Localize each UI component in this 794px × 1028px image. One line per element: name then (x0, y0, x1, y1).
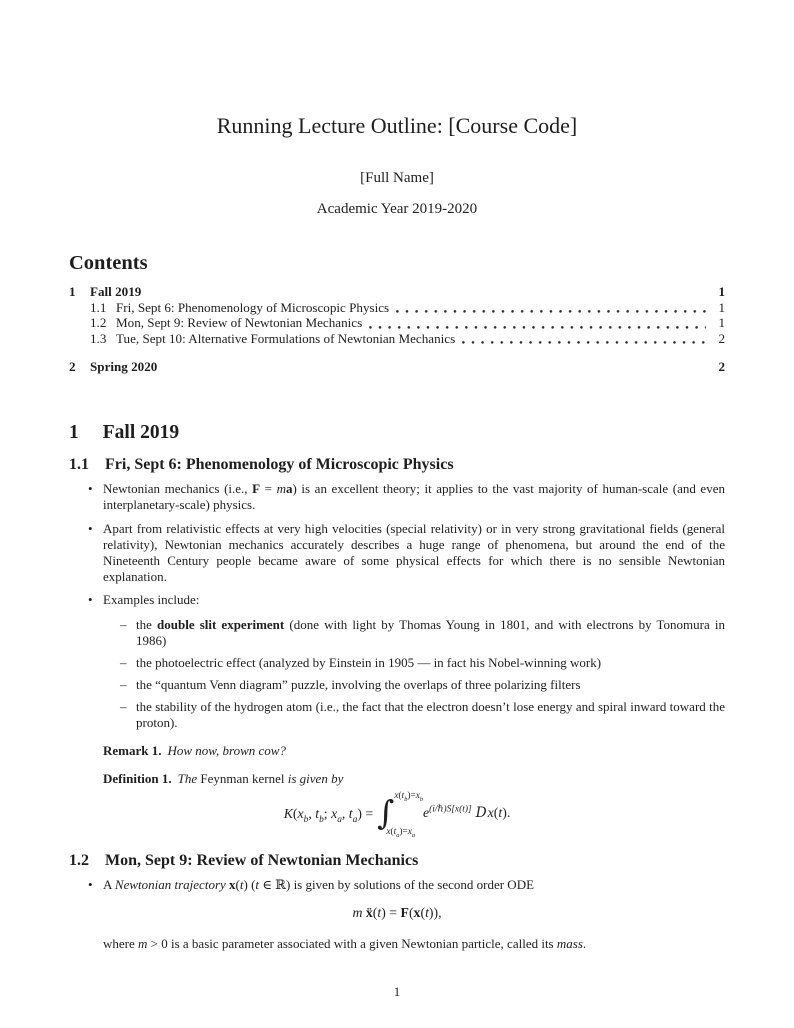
feynman-kernel-equation: K(xb, tb; xa, ta) = ∫ x(tb)=xb x(ta)=xa … (69, 789, 725, 839)
toc-entry-title: Fall 2019 (90, 284, 141, 300)
list-item: • A Newtonian trajectory x(t) (t ∈ ℝ) is… (69, 877, 725, 893)
bullet-icon: • (69, 521, 103, 585)
toc-dot-leader (462, 341, 706, 344)
text-run: ). (502, 805, 510, 820)
text-run: A (103, 877, 115, 892)
subsection-1-1-body: • Newtonian mechanics (i.e., F = ma) is … (69, 481, 725, 839)
sub-list-item-text: the “quantum Venn diagram” puzzle, invol… (136, 677, 725, 693)
toc-entry-page: 2 (711, 359, 725, 375)
subsection-heading-1-1: 1.1 Fri, Sept 6: Phenomenology of Micros… (69, 455, 725, 475)
text-run: )= (407, 791, 415, 801)
subsection-1-2-body: • A Newtonian trajectory x(t) (t ∈ ℝ) is… (69, 877, 725, 953)
text-run: the photoelectric effect (analyzed by Ei… (136, 655, 601, 670)
sub-list-item-text: the photoelectric effect (analyzed by Ei… (136, 655, 725, 671)
toc-dot-leader (396, 310, 706, 313)
section-number: 1 (69, 421, 79, 445)
definition-text: The Feynman kernel is given by (178, 771, 344, 786)
text-run: )= (399, 827, 407, 837)
bullet-icon: • (69, 481, 103, 513)
text-run: m (138, 936, 147, 951)
text-run: )), (429, 905, 442, 920)
bullet-icon: • (69, 877, 103, 893)
toc-entry-page: 2 (711, 331, 725, 347)
page-content: Contents 1 Fall 2019 1 1.1 Fri, Sept 6: … (0, 250, 794, 952)
toc-row-spring-2020: 2 Spring 2020 2 (69, 359, 725, 375)
toc-entry-page: 1 (711, 300, 725, 316)
dash-icon: – (120, 655, 136, 671)
text-run: ∈ ℝ (259, 877, 286, 892)
document-author: [Full Name] (0, 169, 794, 187)
toc-entry-number: 1.3 (90, 331, 116, 347)
text-run: a (412, 831, 415, 838)
toc-entry-title: Mon, Sept 9: Review of Newtonian Mechani… (116, 315, 362, 331)
toc-entry-title: Tue, Sept 10: Alternative Formulations o… (116, 331, 455, 347)
page-number: 1 (0, 984, 794, 1000)
text-run: the stability of the hydrogen atom (i.e.… (136, 699, 725, 730)
toc-entry-number: 1 (69, 284, 90, 300)
list-item: • Newtonian mechanics (i.e., F = ma) is … (69, 481, 725, 513)
document-page: Running Lecture Outline: [Course Code] [… (0, 0, 794, 1028)
text-run: m (277, 481, 286, 496)
integral: ∫ x(tb)=xb x(ta)=xa (377, 791, 423, 837)
dash-icon: – (120, 699, 136, 731)
list-item-text: A Newtonian trajectory x(t) (t ∈ ℝ) is g… (103, 877, 725, 893)
toc-entry-page: 1 (711, 284, 725, 300)
bullet-icon: • (69, 592, 103, 608)
text-run: (i/ℏ)S[x(t)] (429, 805, 472, 815)
toc-entry-title: Spring 2020 (90, 359, 157, 375)
integral-bounds: x(tb)=xb x(ta)=xa (394, 791, 423, 837)
list-item-text: Newtonian mechanics (i.e., F = ma) is an… (103, 481, 725, 513)
section-title: Fall 2019 (103, 421, 179, 445)
text-run: double slit experiment (157, 617, 284, 632)
text-run: F (252, 481, 260, 496)
toc-entry-title: Fri, Sept 6: Phenomenology of Microscopi… (116, 300, 389, 316)
text-run: where (103, 936, 138, 951)
sub-list-item: – the stability of the hydrogen atom (i.… (69, 699, 725, 731)
text-run: . (583, 936, 586, 951)
subsection-title: Fri, Sept 6: Phenomenology of Microscopi… (105, 455, 454, 475)
sub-list-item: – the double slit experiment (done with … (69, 617, 725, 649)
subsection-heading-1-2: 1.2 Mon, Sept 9: Review of Newtonian Mec… (69, 851, 725, 871)
toc-row-1-2: 1.2 Mon, Sept 9: Review of Newtonian Mec… (69, 315, 725, 331)
equation-rhs: e(i/ℏ)S[x(t)]Dx(t). (423, 805, 510, 822)
text-run: The (178, 771, 201, 786)
text-run: F (401, 905, 409, 920)
sub-list-item: – the “quantum Venn diagram” puzzle, inv… (69, 677, 725, 693)
toc-entry-page: 1 (711, 315, 725, 331)
text-run: b (420, 795, 423, 802)
text-run: , (342, 806, 349, 821)
sub-list-item: – the photoelectric effect (analyzed by … (69, 655, 725, 671)
text-run: ẍ (366, 905, 373, 920)
toc-row-1-1: 1.1 Fri, Sept 6: Phenomenology of Micros… (69, 300, 725, 316)
toc-row-1-3: 1.3 Tue, Sept 10: Alternative Formulatio… (69, 331, 725, 347)
integral-lower-bound: x(ta)=xa (386, 827, 423, 837)
toc-row-fall-2019: 1 Fall 2019 1 (69, 284, 725, 300)
definition-1: Definition 1.The Feynman kernel is given… (69, 771, 725, 787)
dash-icon: – (120, 677, 136, 693)
equation-lhs: K(xb, tb; xa, ta) = (284, 806, 373, 822)
sub-list-item-text: the stability of the hydrogen atom (i.e.… (136, 699, 725, 731)
text-run: D (476, 805, 487, 821)
text-run: ; (324, 806, 331, 821)
table-of-contents: 1 Fall 2019 1 1.1 Fri, Sept 6: Phenomeno… (69, 284, 725, 375)
integral-upper-bound: x(tb)=xb (394, 791, 423, 801)
contents-heading: Contents (69, 250, 725, 276)
section-heading-fall-2019: 1 Fall 2019 (69, 421, 725, 445)
list-item-text: Apart from relativistic effects at very … (103, 521, 725, 585)
text-run: mass (557, 936, 583, 951)
remark-text: How now, brown cow? (168, 743, 286, 758)
text-run: the “quantum Venn diagram” puzzle, invol… (136, 677, 581, 692)
text-run: Feynman kernel (200, 771, 284, 786)
text-run: ) = (357, 806, 373, 821)
text-run: Apart from relativistic effects at very … (103, 521, 725, 584)
list-item: • Examples include: (69, 592, 725, 608)
text-run: ) ( (244, 877, 256, 892)
text-run: = (260, 481, 277, 496)
text-run: is given by (285, 771, 344, 786)
text-run: Newtonian trajectory (115, 877, 226, 892)
newton-ode-equation: m ẍ(t) = F(x(t)), (69, 904, 725, 922)
document-date: Academic Year 2019-2020 (0, 200, 794, 218)
remark-1: Remark 1.How now, brown cow? (69, 743, 725, 759)
subsection-number: 1.1 (69, 455, 89, 475)
text-run: Newtonian mechanics (i.e., (103, 481, 252, 496)
definition-label: Definition 1. (103, 771, 172, 786)
remark-label: Remark 1. (103, 743, 162, 758)
mass-paragraph: where m > 0 is a basic parameter associa… (103, 936, 725, 952)
toc-entry-number: 1.1 (90, 300, 116, 316)
document-title: Running Lecture Outline: [Course Code] (0, 0, 794, 140)
subsection-title: Mon, Sept 9: Review of Newtonian Mechani… (105, 851, 418, 871)
toc-dot-leader (369, 326, 706, 329)
dash-icon: – (120, 617, 136, 649)
list-item-text: Examples include: (103, 592, 725, 608)
text-run: the (136, 617, 157, 632)
text-run: ) is given by solutions of the second or… (286, 877, 534, 892)
sub-list-item-text: the double slit experiment (done with li… (136, 617, 725, 649)
text-run: ) = (381, 905, 400, 920)
toc-entry-number: 1.2 (90, 315, 116, 331)
subsection-number: 1.2 (69, 851, 89, 871)
text-run: K (284, 806, 293, 821)
text-run: Examples include: (103, 592, 199, 607)
toc-entry-number: 2 (69, 359, 90, 375)
text-run: > 0 is a basic parameter associated with… (147, 936, 556, 951)
text-run: m (352, 905, 362, 920)
list-item: • Apart from relativistic effects at ver… (69, 521, 725, 585)
